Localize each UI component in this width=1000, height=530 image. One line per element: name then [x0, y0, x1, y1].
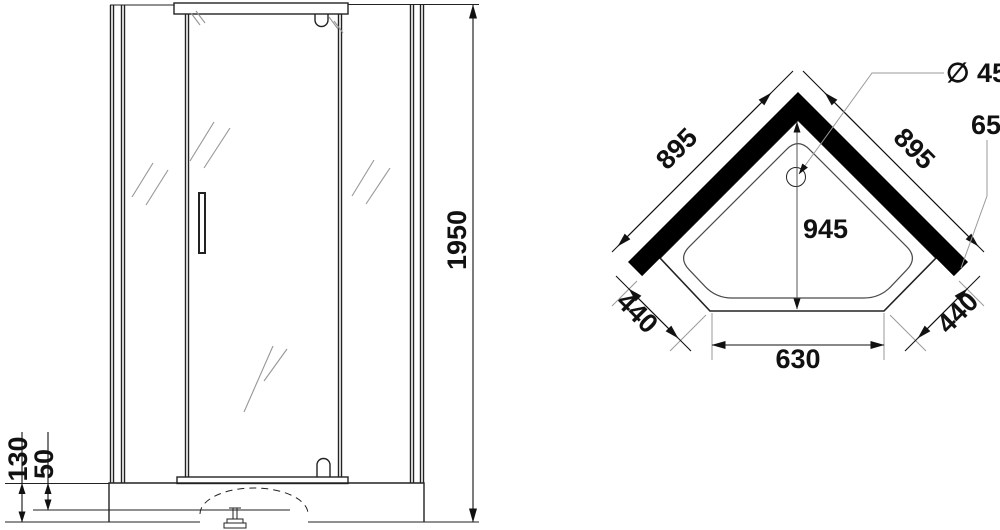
drain-hole [787, 168, 806, 187]
dim-50-label: 50 [29, 449, 59, 479]
plan-view: 945 895 895 440 440 630 [611, 58, 1000, 374]
glass-mark [264, 349, 287, 381]
dim-945-label: 945 [803, 214, 848, 244]
foot-base [224, 523, 246, 528]
glass-mark [132, 163, 153, 197]
glass-mark [366, 168, 390, 204]
drain-diameter-label: ∅ 45 [946, 58, 1000, 88]
front-view-dimensions: 1950 130 50 [3, 5, 473, 522]
profile-leader-line [961, 140, 987, 268]
ext-line [890, 315, 926, 351]
shower-base [5, 483, 479, 528]
glass-mark [190, 122, 214, 161]
dim-440-left-label: 440 [611, 286, 664, 339]
corner-walls [628, 92, 968, 276]
foot-plate [227, 519, 243, 523]
glass-mark [329, 17, 338, 29]
shower-frame [110, 3, 479, 483]
dim-630-label: 630 [775, 344, 820, 374]
door-handle [199, 193, 205, 253]
top-hinge [315, 14, 328, 27]
glass-reflection-marks [132, 11, 390, 412]
ext-line [670, 315, 706, 351]
glass-mark [352, 160, 374, 196]
drawing-canvas: 1950 130 50 945 895 895 [0, 0, 1000, 530]
tray-basin [684, 144, 913, 298]
dim-895-left-label: 895 [650, 122, 703, 175]
shower-door [177, 14, 348, 484]
dim-1950-label: 1950 [442, 210, 472, 270]
technical-drawing: 1950 130 50 945 895 895 [0, 0, 1000, 530]
front-view: 1950 130 50 [3, 3, 479, 528]
glass-mark [244, 346, 273, 412]
profile-width-label: 65 [971, 110, 1000, 140]
adjustable-foot [224, 508, 246, 528]
bottom-hinge [317, 459, 330, 477]
glass-mark [146, 170, 168, 205]
dim-440-right-label: 440 [931, 286, 984, 339]
dim-895-right-label: 895 [888, 122, 941, 175]
glass-mark [204, 128, 230, 168]
top-bar [174, 3, 348, 14]
